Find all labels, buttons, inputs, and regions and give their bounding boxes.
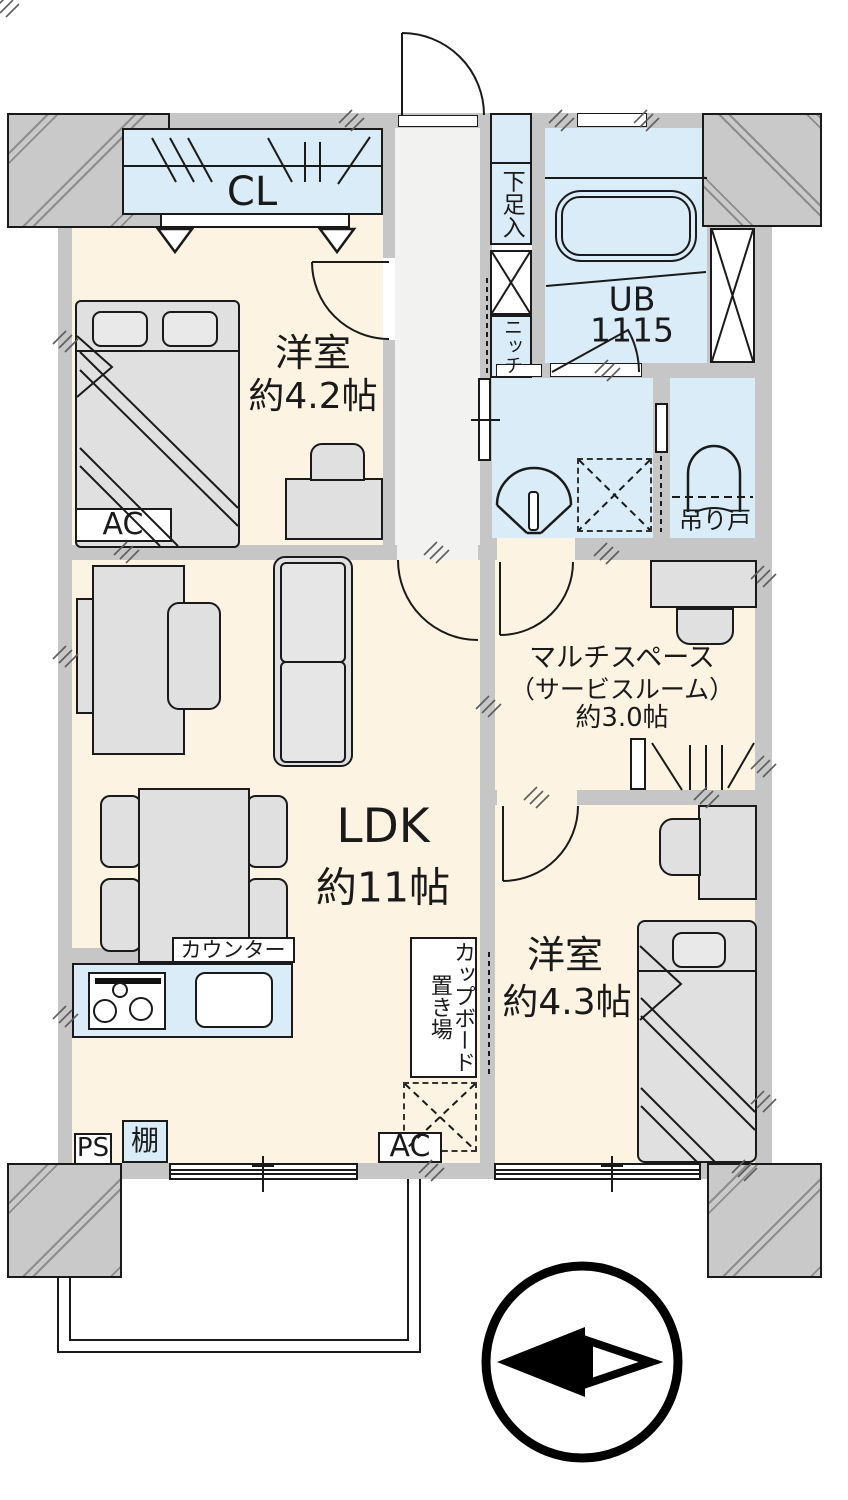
dining-chair: [100, 795, 142, 868]
bath-size: 1115: [590, 314, 674, 349]
cupboard-label: カップボード置き場: [412, 940, 474, 1074]
hallway-floor: [395, 115, 480, 545]
shelf-label: 棚: [131, 1126, 159, 1156]
dining-chair: [246, 795, 288, 868]
closet-label: CL: [227, 171, 277, 213]
entrance-door-arc: [402, 33, 484, 115]
coffee-table: [167, 602, 221, 710]
door-opening-ldk: [397, 545, 478, 560]
wall-ldk-east: [480, 560, 495, 1163]
chair-multi: [676, 608, 734, 645]
bed-bedroom2: [637, 920, 757, 1163]
shoe-cabinet-label: 下足入: [499, 170, 523, 239]
desk-bedroom2: [698, 805, 757, 900]
pillar-bottom-left: [7, 1163, 122, 1278]
wall-bottom: [58, 1163, 772, 1179]
desk-bedroom1: [285, 478, 383, 540]
door-opening-multi: [497, 538, 575, 560]
closet-door-rail: [160, 213, 350, 228]
counter-label: カウンター: [181, 939, 286, 961]
wall-left: [58, 228, 72, 1178]
pillar-box-genkan: [490, 250, 532, 315]
room-multi-size: 約3.0帖: [575, 705, 668, 733]
washroom-sliding-door: [478, 378, 491, 461]
pipe-space-label: PS: [77, 1135, 109, 1163]
bathtub: [555, 190, 697, 262]
hanger-jamb: [630, 738, 646, 790]
wall-genkan-bath: [532, 128, 545, 378]
desk-multi: [650, 560, 757, 608]
room-multi-name2: （サービスルーム）: [510, 677, 734, 704]
ac-label-bedroom1: AC: [103, 509, 144, 541]
chair-bedroom1: [310, 443, 365, 481]
washing-machine-space: [577, 458, 652, 532]
floor-plan: CL 洋室 約4.2帖 下足入 ニッチ UB 1115 吊り戸 マルチスペース …: [0, 0, 848, 1500]
hanging-door-label: 吊り戸: [679, 508, 751, 533]
room-ldk-name: LDK: [336, 802, 429, 852]
room-bedroom1-name: 洋室: [275, 333, 351, 373]
compass-icon: [486, 1266, 678, 1458]
room-multi-name: マルチスペース: [529, 645, 715, 674]
entrance-threshold: [398, 115, 478, 127]
kitchen-sink: [195, 972, 273, 1028]
chair-bedroom2: [659, 818, 701, 876]
niche-label: ニッチ: [501, 318, 521, 375]
room-bedroom2-size: 約4.3帖: [502, 984, 631, 1022]
room-bedroom1-size: 約4.2帖: [248, 378, 377, 416]
door-opening-bedroom2: [497, 790, 577, 805]
room-bedroom2-name: 洋室: [527, 935, 603, 975]
bath-bottom-threshold: [550, 363, 642, 377]
pipe-box-bath: [710, 228, 755, 363]
wall-washroom-toilet: [653, 378, 670, 538]
dining-chair: [100, 878, 142, 952]
bath-top-threshold: [577, 113, 647, 127]
pillar-top-right: [702, 113, 822, 227]
ac-label-ldk: AC: [390, 1131, 431, 1163]
door-opening-bedroom1: [383, 258, 395, 340]
sofa: [273, 556, 353, 767]
pillar-bottom-right: [707, 1163, 822, 1278]
toilet-sliding-door: [655, 403, 668, 453]
stove: [88, 972, 166, 1030]
room-ldk-size: 約11帖: [316, 866, 450, 909]
